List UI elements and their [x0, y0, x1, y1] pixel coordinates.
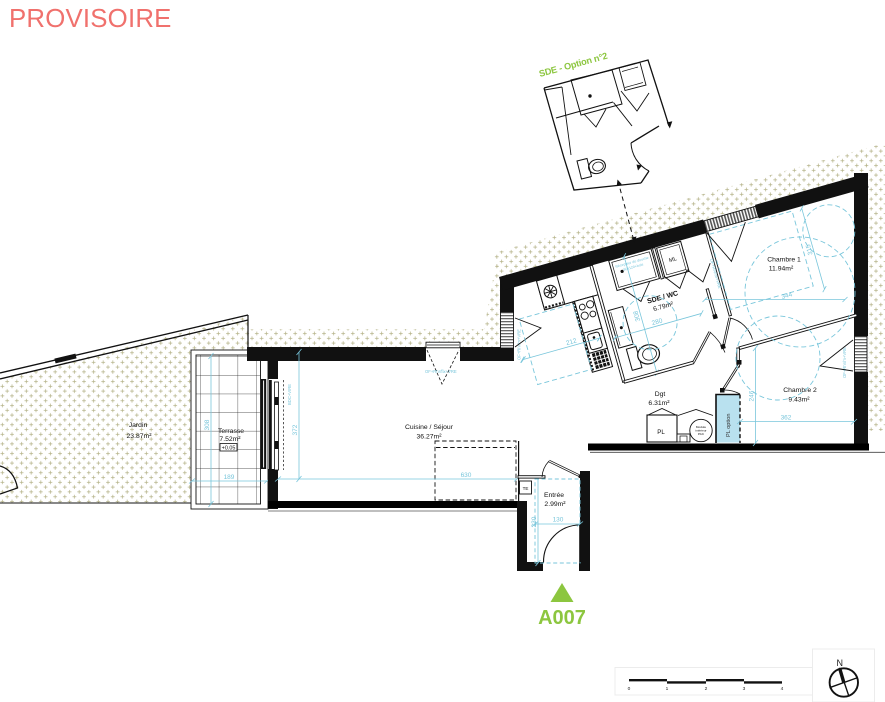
svg-text:Dgt: Dgt — [655, 391, 666, 398]
svg-text:372: 372 — [292, 424, 299, 435]
svg-text:Chambre 1: Chambre 1 — [767, 257, 801, 264]
svg-text:230: 230 — [531, 516, 538, 527]
svg-text:N: N — [837, 658, 844, 668]
svg-text:11.94m²: 11.94m² — [769, 266, 794, 273]
svg-text:PL: PL — [657, 429, 665, 436]
svg-text:36.27m²: 36.27m² — [417, 434, 443, 441]
svg-text:Cuisine / Séjour: Cuisine / Séjour — [405, 424, 454, 431]
svg-text:Chambre 2: Chambre 2 — [783, 387, 817, 394]
svg-text:BDC+VIRE: BDC+VIRE — [287, 384, 292, 405]
svg-text:PROVISOIRE: PROVISOIRE — [9, 5, 172, 33]
svg-text:130: 130 — [553, 517, 564, 524]
svg-text:TE: TE — [523, 486, 529, 491]
svg-text:OF+RIV/fix+VRE: OF+RIV/fix+VRE — [425, 369, 457, 374]
svg-text:1: 1 — [666, 686, 669, 692]
svg-text:2.99m²: 2.99m² — [544, 501, 566, 508]
svg-text:6.31m²: 6.31m² — [648, 400, 670, 407]
svg-text:4: 4 — [781, 686, 784, 692]
svg-text:246: 246 — [749, 390, 756, 401]
svg-text:OF+RIV/m+VRE: OF+RIV/m+VRE — [842, 347, 847, 378]
svg-text:308: 308 — [204, 419, 211, 430]
svg-text:Jardin: Jardin — [129, 422, 148, 429]
svg-text:Entrée: Entrée — [544, 492, 564, 499]
svg-text:PL option: PL option — [726, 414, 732, 437]
svg-text:23.87m²: 23.87m² — [127, 433, 153, 440]
svg-text:3: 3 — [743, 686, 746, 692]
svg-text:PAC: PAC — [698, 432, 705, 436]
svg-text:189: 189 — [224, 474, 235, 481]
svg-text:630: 630 — [461, 472, 472, 479]
svg-text:A007: A007 — [538, 607, 586, 629]
svg-text:2: 2 — [705, 686, 708, 692]
svg-text:362: 362 — [781, 415, 792, 422]
svg-text:Terrasse: Terrasse — [218, 428, 244, 435]
svg-text:0: 0 — [628, 686, 631, 692]
svg-text:+0.05: +0.05 — [222, 446, 236, 452]
svg-text:7.52m²: 7.52m² — [219, 436, 241, 443]
